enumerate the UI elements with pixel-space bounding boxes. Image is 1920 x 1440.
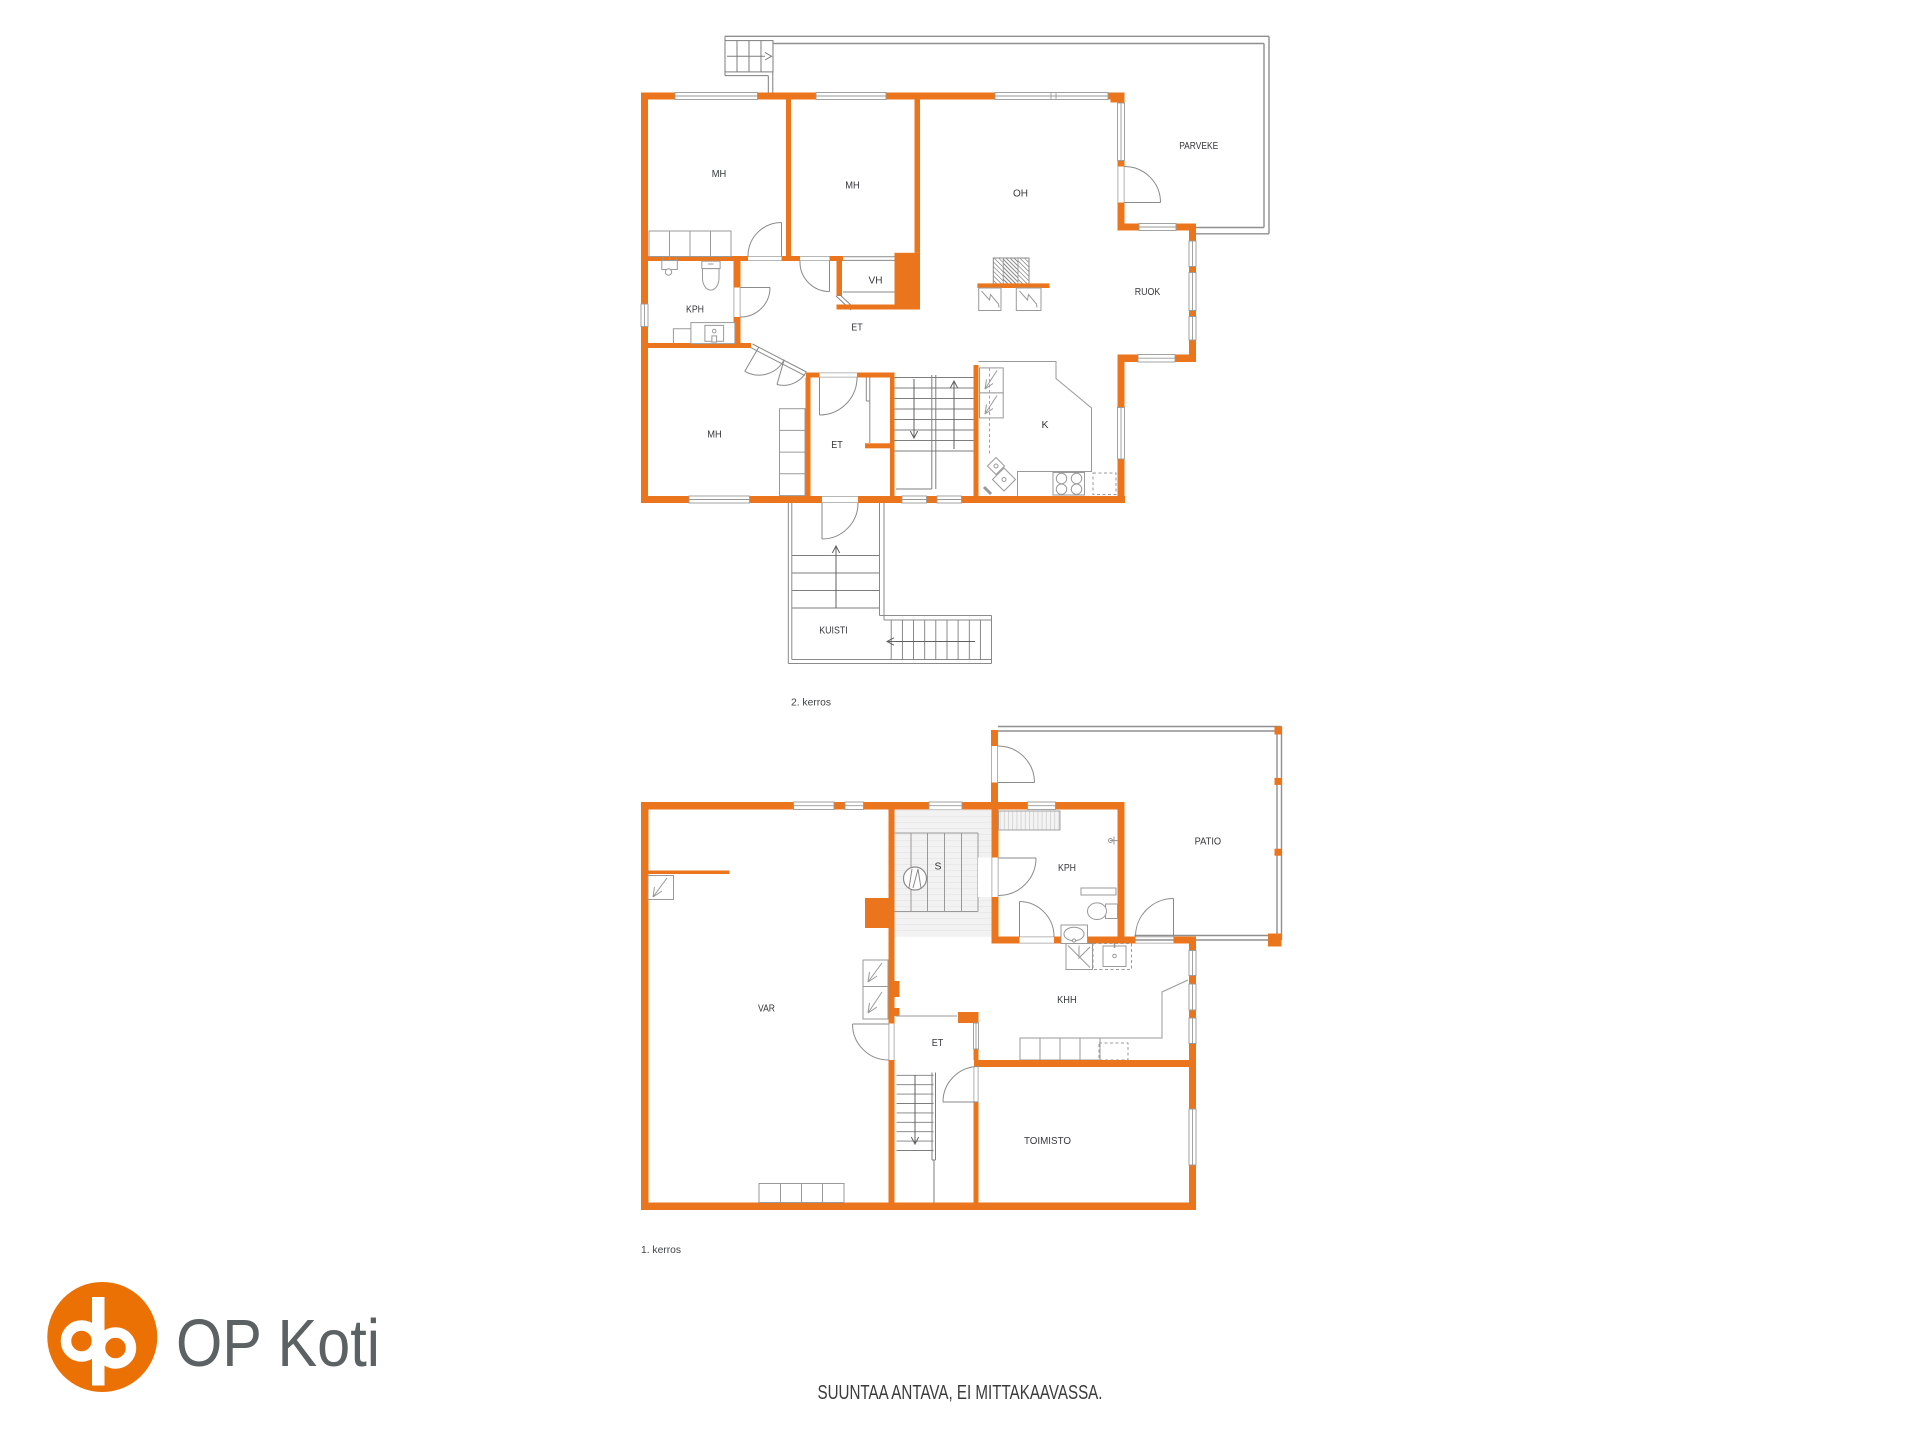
svg-text:KUISTI: KUISTI: [819, 625, 848, 637]
svg-text:SUUNTAA ANTAVA, EI MITTAKAAVAS: SUUNTAA ANTAVA, EI MITTAKAAVASSA.: [818, 1381, 1103, 1404]
svg-text:KHH: KHH: [1057, 994, 1077, 1006]
svg-text:MH: MH: [712, 168, 727, 180]
svg-text:RUOK: RUOK: [1135, 286, 1161, 298]
svg-text:ET: ET: [851, 322, 863, 334]
svg-text:1. kerros: 1. kerros: [641, 1245, 681, 1256]
svg-text:OP Koti: OP Koti: [176, 1306, 380, 1381]
svg-text:S: S: [934, 861, 941, 873]
svg-text:ET: ET: [831, 439, 843, 451]
svg-text:TOIMISTO: TOIMISTO: [1024, 1135, 1071, 1147]
svg-text:K: K: [1041, 419, 1048, 431]
svg-text:VAR: VAR: [758, 1003, 775, 1015]
svg-text:2. kerros: 2. kerros: [791, 698, 831, 709]
svg-text:KPH: KPH: [1058, 862, 1076, 874]
svg-text:PATIO: PATIO: [1195, 836, 1222, 848]
svg-text:VH: VH: [869, 275, 883, 287]
svg-text:OH: OH: [1013, 188, 1028, 200]
svg-text:ET: ET: [932, 1037, 944, 1049]
svg-text:MH: MH: [707, 429, 722, 441]
svg-text:PARVEKE: PARVEKE: [1179, 140, 1218, 152]
svg-text:MH: MH: [845, 180, 860, 192]
svg-text:KPH: KPH: [686, 304, 704, 316]
